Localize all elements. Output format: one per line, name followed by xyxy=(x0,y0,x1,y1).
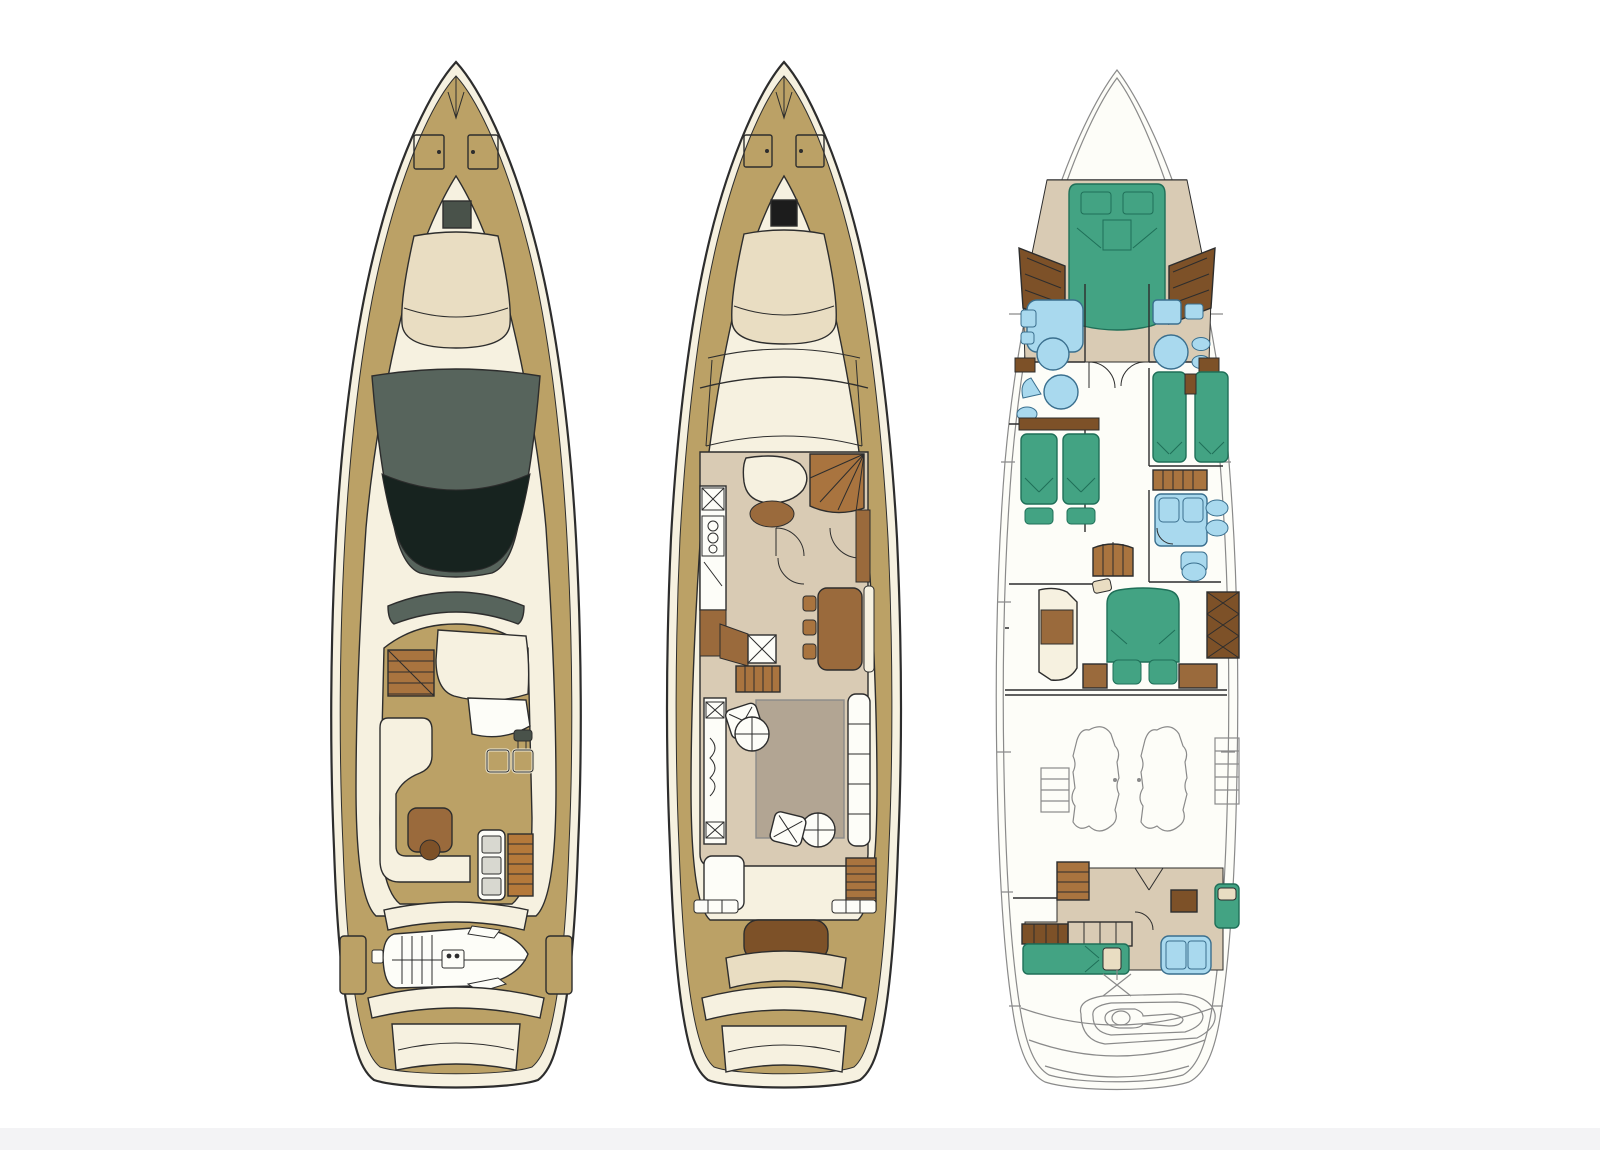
cockpit-bench xyxy=(726,920,846,988)
sun-lounger xyxy=(478,830,533,900)
interior-stairs-fwd xyxy=(810,454,864,513)
coffee-table xyxy=(735,717,769,751)
crew-bed-port xyxy=(1023,944,1129,974)
crew-stairs xyxy=(1057,862,1089,900)
lower-deck-plan xyxy=(985,62,1247,1097)
flybridge-deck-plan xyxy=(322,58,590,1103)
coffee-table xyxy=(801,813,835,847)
master-wardrobe xyxy=(1207,592,1239,658)
skylight-hatch xyxy=(443,201,471,228)
crew-bed-starboard xyxy=(1215,884,1239,928)
main-deck-plan xyxy=(660,58,910,1103)
crew-shower xyxy=(1161,936,1211,974)
bow-sunpad xyxy=(402,232,511,348)
bottom-strip xyxy=(0,1128,1600,1150)
flybridge-sunbed xyxy=(436,630,529,701)
black-hatch xyxy=(771,200,797,226)
master-sofa xyxy=(1039,588,1077,680)
bow-sunpad xyxy=(732,230,837,344)
flybridge-table xyxy=(408,808,452,860)
flybridge-stairs xyxy=(388,650,434,696)
yacht-deck-plans-canvas xyxy=(0,0,1600,1150)
helm-seats xyxy=(487,750,533,772)
